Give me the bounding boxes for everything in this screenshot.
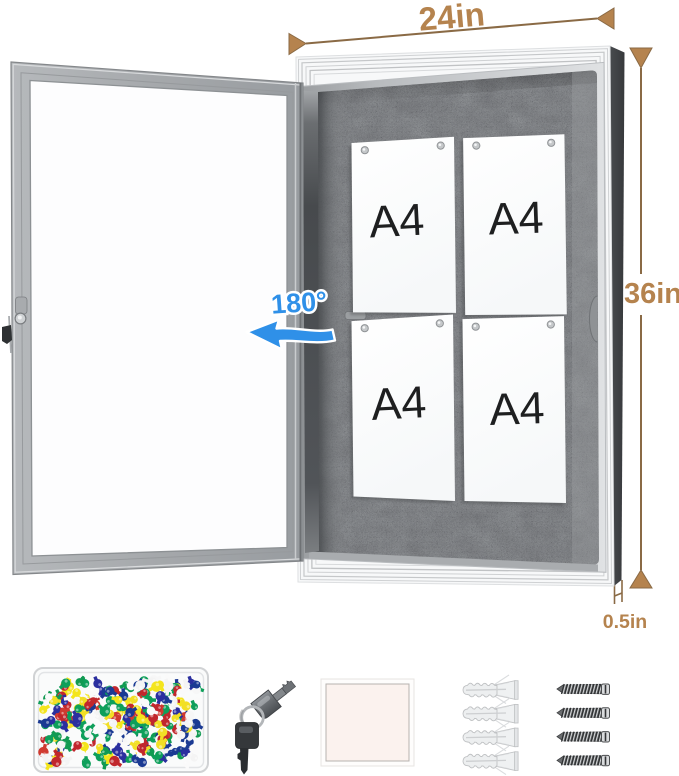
- svg-text:A4: A4: [370, 376, 428, 430]
- svg-text:24in: 24in: [417, 0, 486, 38]
- svg-text:36in: 36in: [624, 278, 679, 310]
- svg-text:A4: A4: [368, 194, 426, 248]
- svg-text:0.5in: 0.5in: [603, 611, 647, 633]
- svg-text:180°: 180°: [270, 286, 328, 320]
- svg-text:A4: A4: [489, 382, 546, 435]
- svg-text:A4: A4: [488, 192, 545, 245]
